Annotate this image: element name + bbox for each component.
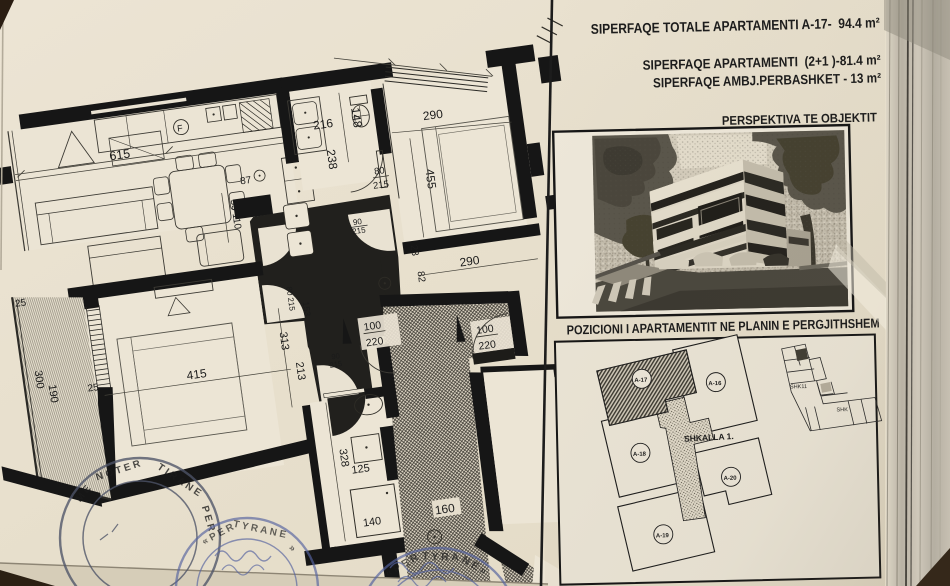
svg-text:23: 23: [408, 244, 421, 257]
svg-text:213: 213: [293, 361, 307, 381]
svg-text:153: 153: [301, 301, 313, 317]
svg-text:328: 328: [336, 448, 350, 468]
svg-text:T Y R A: T Y R A: [422, 550, 459, 563]
svg-text:216: 216: [312, 116, 334, 133]
svg-text:25: 25: [87, 382, 100, 395]
svg-text:415: 415: [186, 366, 208, 383]
svg-text:80: 80: [284, 286, 294, 297]
svg-text:82: 82: [415, 270, 428, 283]
svg-text:87: 87: [240, 175, 253, 188]
svg-text:160: 160: [434, 501, 456, 518]
svg-text:148: 148: [348, 107, 365, 129]
svg-text:25: 25: [14, 297, 27, 310]
svg-text:300: 300: [32, 370, 46, 390]
svg-text:215: 215: [286, 297, 297, 312]
svg-text:125: 125: [351, 462, 371, 476]
svg-text:290: 290: [459, 253, 481, 270]
svg-text:220: 220: [478, 338, 497, 352]
svg-text:455: 455: [422, 168, 439, 190]
svg-text:220: 220: [365, 335, 384, 349]
svg-text:80: 80: [373, 165, 385, 177]
svg-text:140: 140: [362, 515, 382, 529]
svg-text:190: 190: [46, 384, 60, 404]
svg-text:290: 290: [422, 107, 444, 124]
svg-text:215: 215: [372, 179, 389, 192]
svg-text:238: 238: [324, 149, 341, 171]
svg-text:313: 313: [277, 331, 291, 351]
svg-text:215: 215: [329, 359, 343, 370]
